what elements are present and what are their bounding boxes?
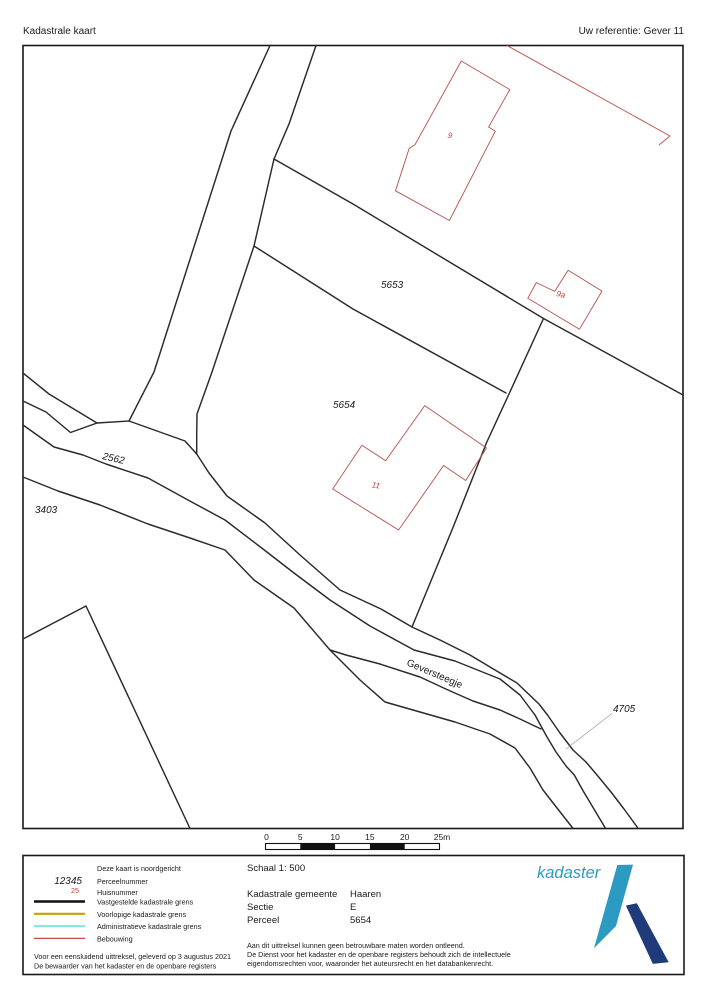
svg-text:25m: 25m: [434, 832, 451, 842]
svg-text:5653: 5653: [381, 280, 404, 291]
svg-text:Kadastrale kaart: Kadastrale kaart: [23, 26, 96, 37]
svg-text:4705: 4705: [613, 704, 636, 715]
svg-text:5: 5: [298, 832, 303, 842]
svg-text:Administratieve kadastrale gre: Administratieve kadastrale grens: [97, 922, 202, 931]
svg-text:25: 25: [71, 886, 79, 895]
svg-text:Perceel: Perceel: [247, 915, 279, 926]
svg-text:Voorlopige kadastrale grens: Voorlopige kadastrale grens: [97, 910, 187, 919]
svg-text:5654: 5654: [350, 915, 371, 926]
svg-text:Deze kaart is noordgericht: Deze kaart is noordgericht: [97, 864, 181, 873]
svg-text:Schaal 1: 500: Schaal 1: 500: [247, 863, 305, 874]
svg-text:20: 20: [400, 832, 410, 842]
svg-text:Vastgestelde kadastrale grens: Vastgestelde kadastrale grens: [97, 898, 194, 907]
svg-text:Aan dit uittreksel kunnen geen: Aan dit uittreksel kunnen geen betrouwba…: [247, 941, 465, 950]
svg-text:15: 15: [365, 832, 375, 842]
svg-text:Kadastrale gemeente: Kadastrale gemeente: [247, 889, 337, 900]
svg-text:5654: 5654: [333, 400, 356, 411]
svg-text:Bebouwing: Bebouwing: [97, 934, 133, 943]
svg-text:3403: 3403: [35, 505, 58, 516]
svg-text:Voor een eensluidend uittrekse: Voor een eensluidend uittreksel, gelever…: [34, 952, 231, 961]
svg-text:10: 10: [330, 832, 340, 842]
svg-text:Huisnummer: Huisnummer: [97, 888, 138, 897]
svg-text:E: E: [350, 902, 356, 913]
svg-text:kadaster: kadaster: [537, 864, 602, 882]
svg-text:Perceelnummer: Perceelnummer: [97, 877, 148, 886]
svg-text:Uw referentie: Gever 11: Uw referentie: Gever 11: [579, 26, 685, 37]
svg-text:11: 11: [371, 480, 381, 490]
svg-text:De bewaarder van het kadaster: De bewaarder van het kadaster en de open…: [34, 962, 217, 971]
svg-text:De Dienst voor het kadaster en: De Dienst voor het kadaster en de openba…: [247, 950, 511, 959]
svg-text:0: 0: [264, 832, 269, 842]
svg-text:Sectie: Sectie: [247, 902, 273, 913]
svg-text:Haaren: Haaren: [350, 889, 381, 900]
svg-text:eigendomsrechten voor, waarond: eigendomsrechten voor, waaronder het aut…: [247, 959, 493, 968]
